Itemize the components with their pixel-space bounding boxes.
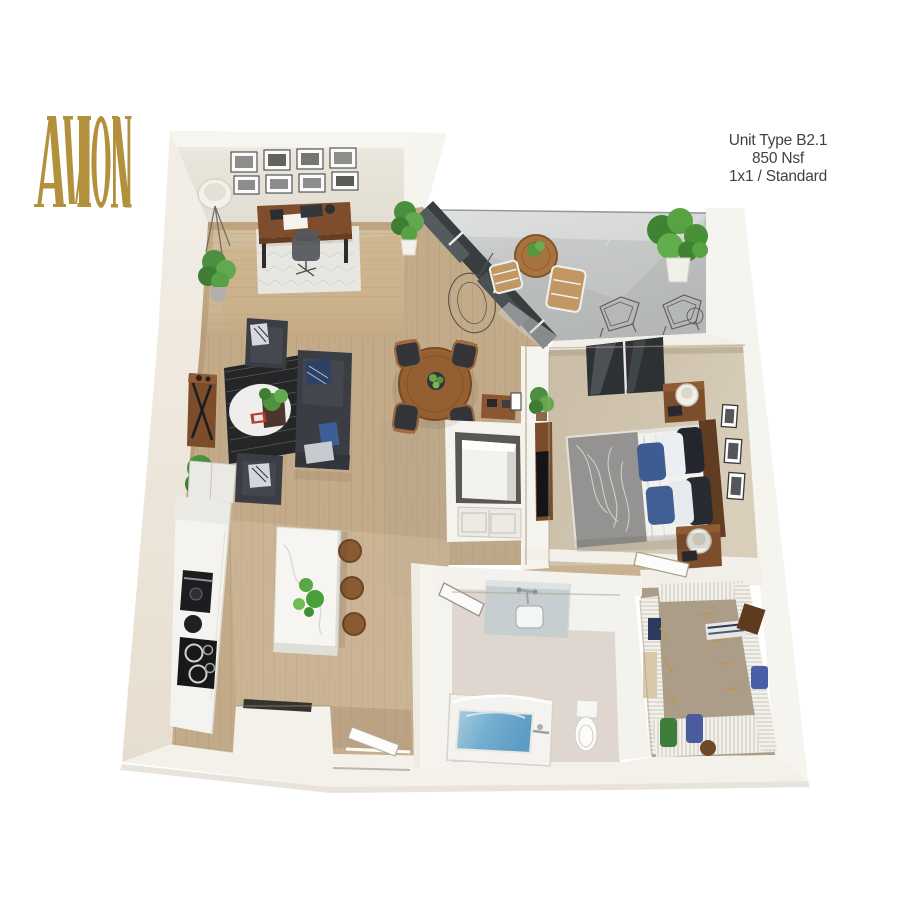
svg-text:1x1 / Standard: 1x1 / Standard bbox=[729, 168, 827, 185]
svg-text:Unit Type B2.1: Unit Type B2.1 bbox=[729, 132, 828, 149]
svg-text:850 Nsf: 850 Nsf bbox=[752, 150, 805, 167]
